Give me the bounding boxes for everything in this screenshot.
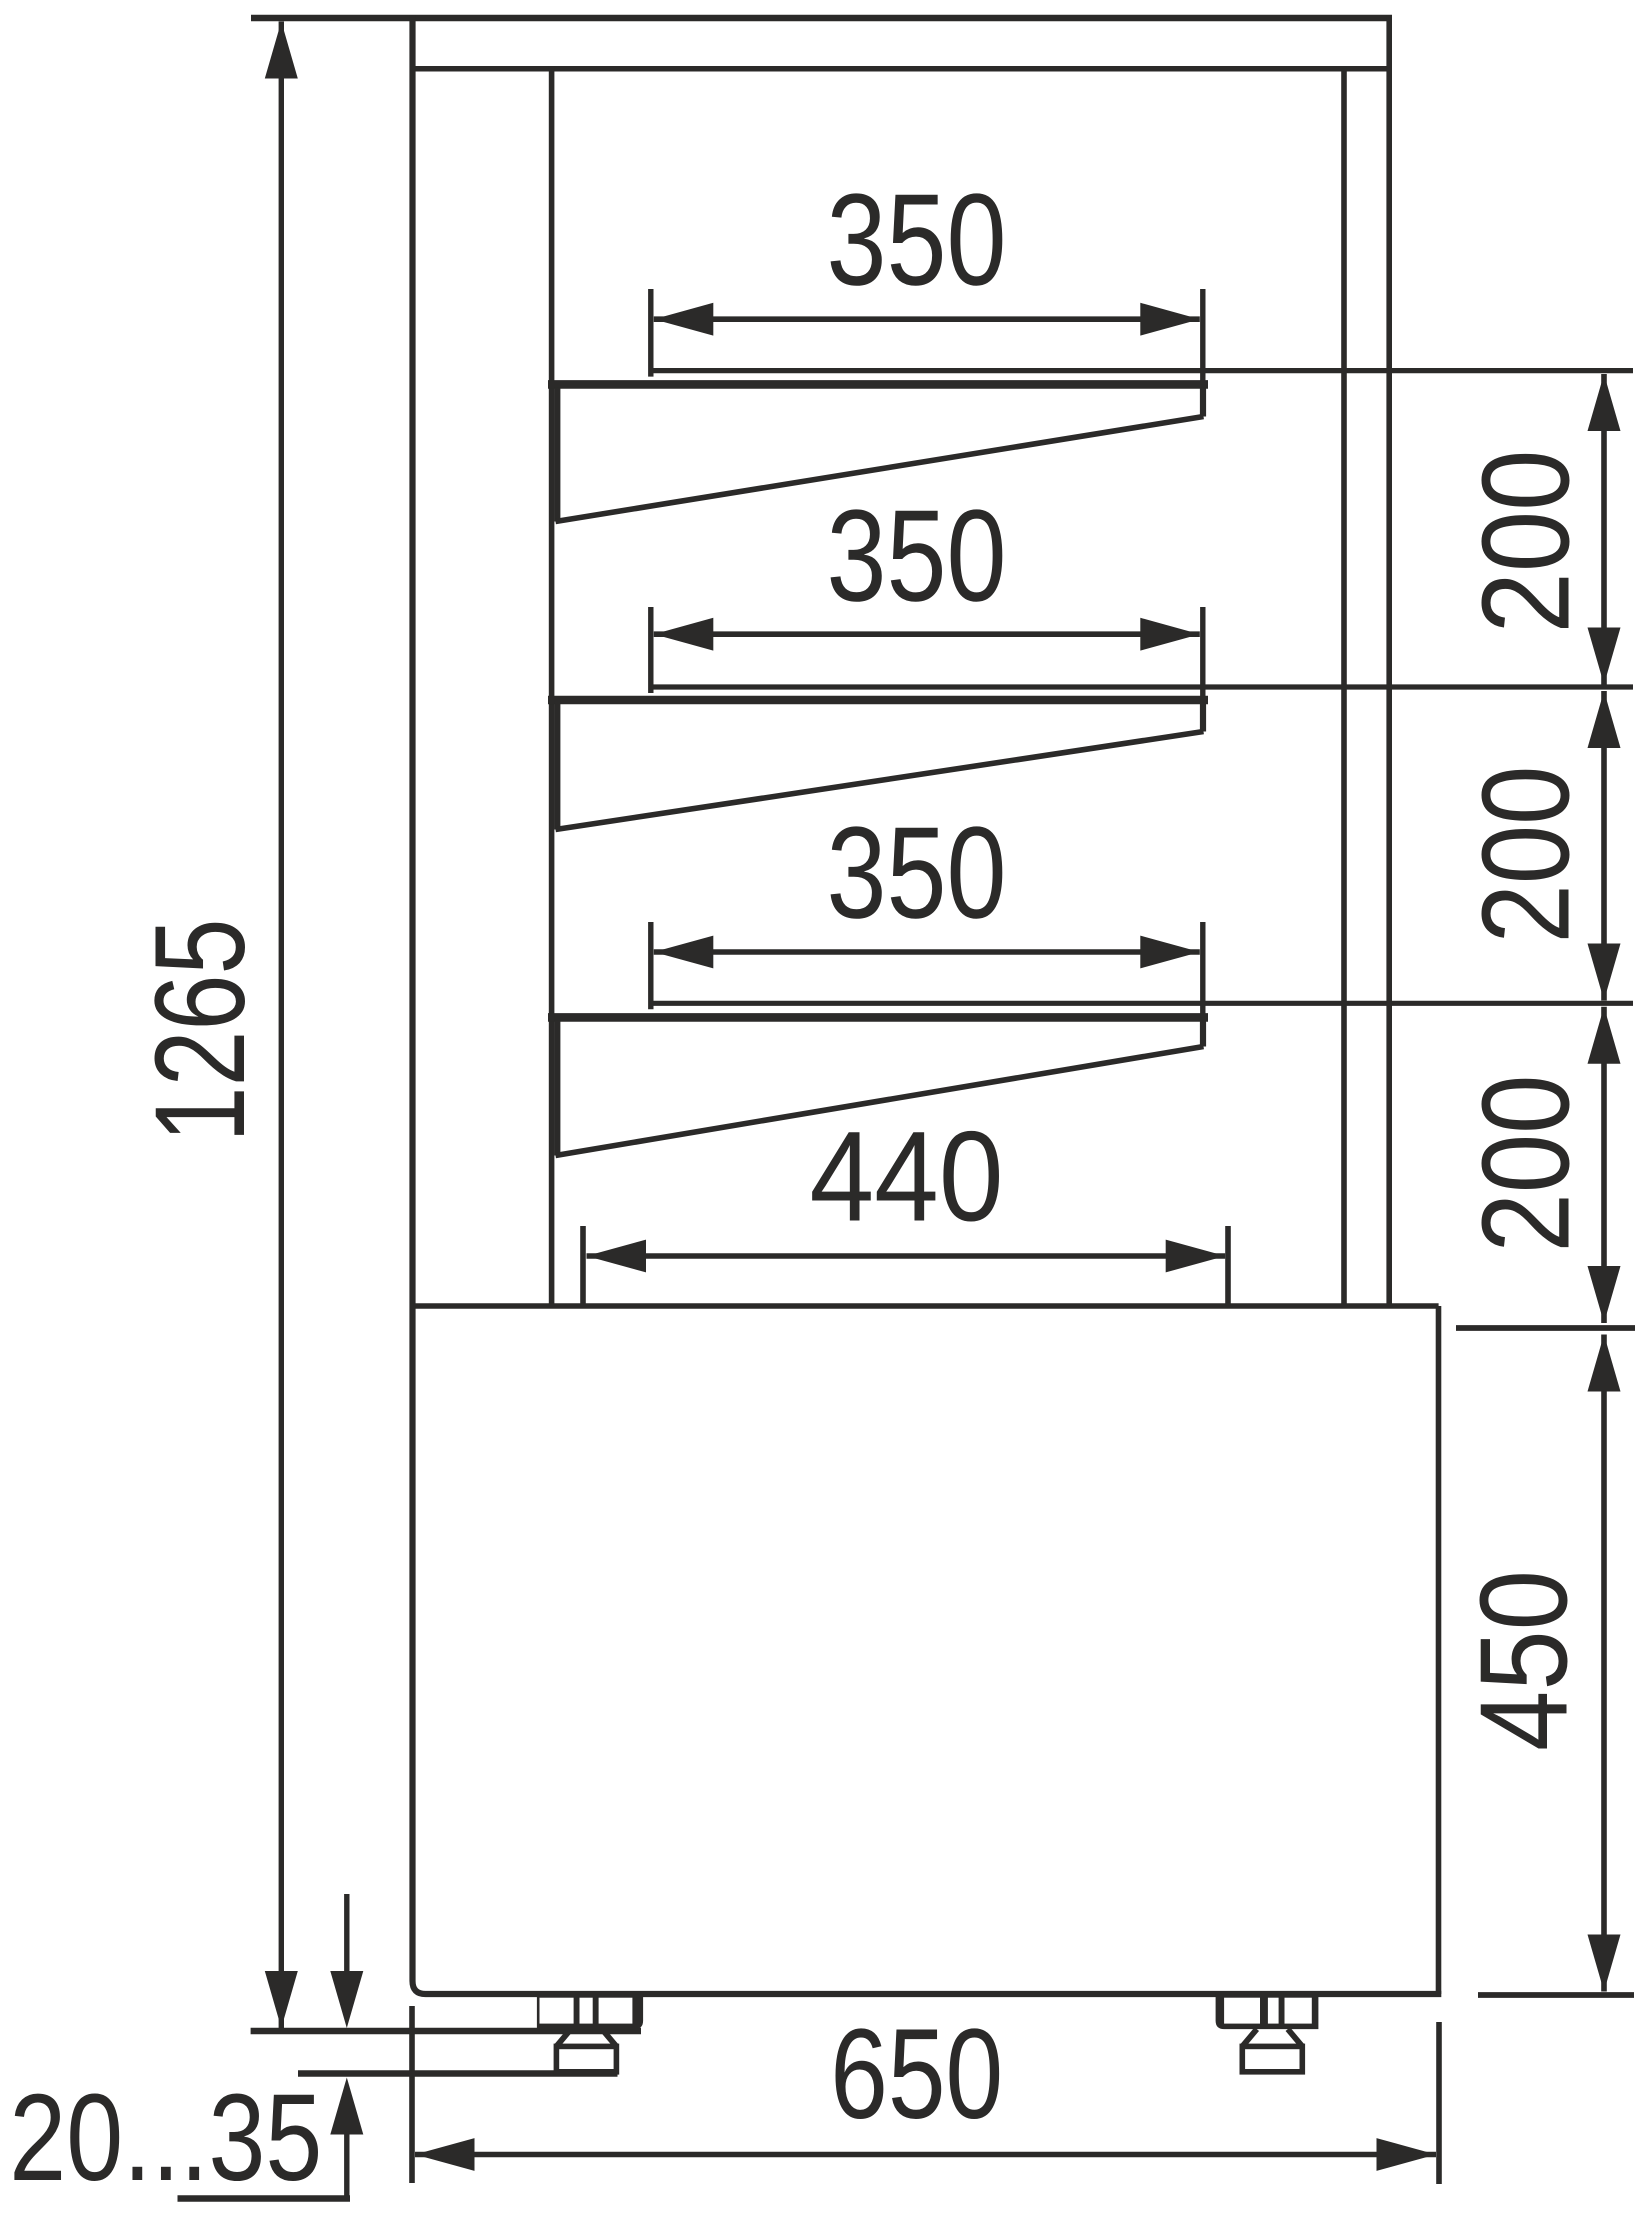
svg-text:350: 350 [827,800,1007,946]
svg-text:200: 200 [1457,1075,1595,1253]
svg-text:450: 450 [1456,1570,1594,1751]
svg-text:200: 200 [1457,766,1595,944]
svg-text:20...35: 20...35 [9,2069,322,2207]
svg-text:350: 350 [827,167,1007,313]
svg-text:650: 650 [830,2003,1003,2146]
svg-text:350: 350 [827,483,1007,629]
svg-text:440: 440 [810,1106,1004,1249]
svg-text:1265: 1265 [129,919,272,1143]
svg-text:200: 200 [1457,450,1595,634]
